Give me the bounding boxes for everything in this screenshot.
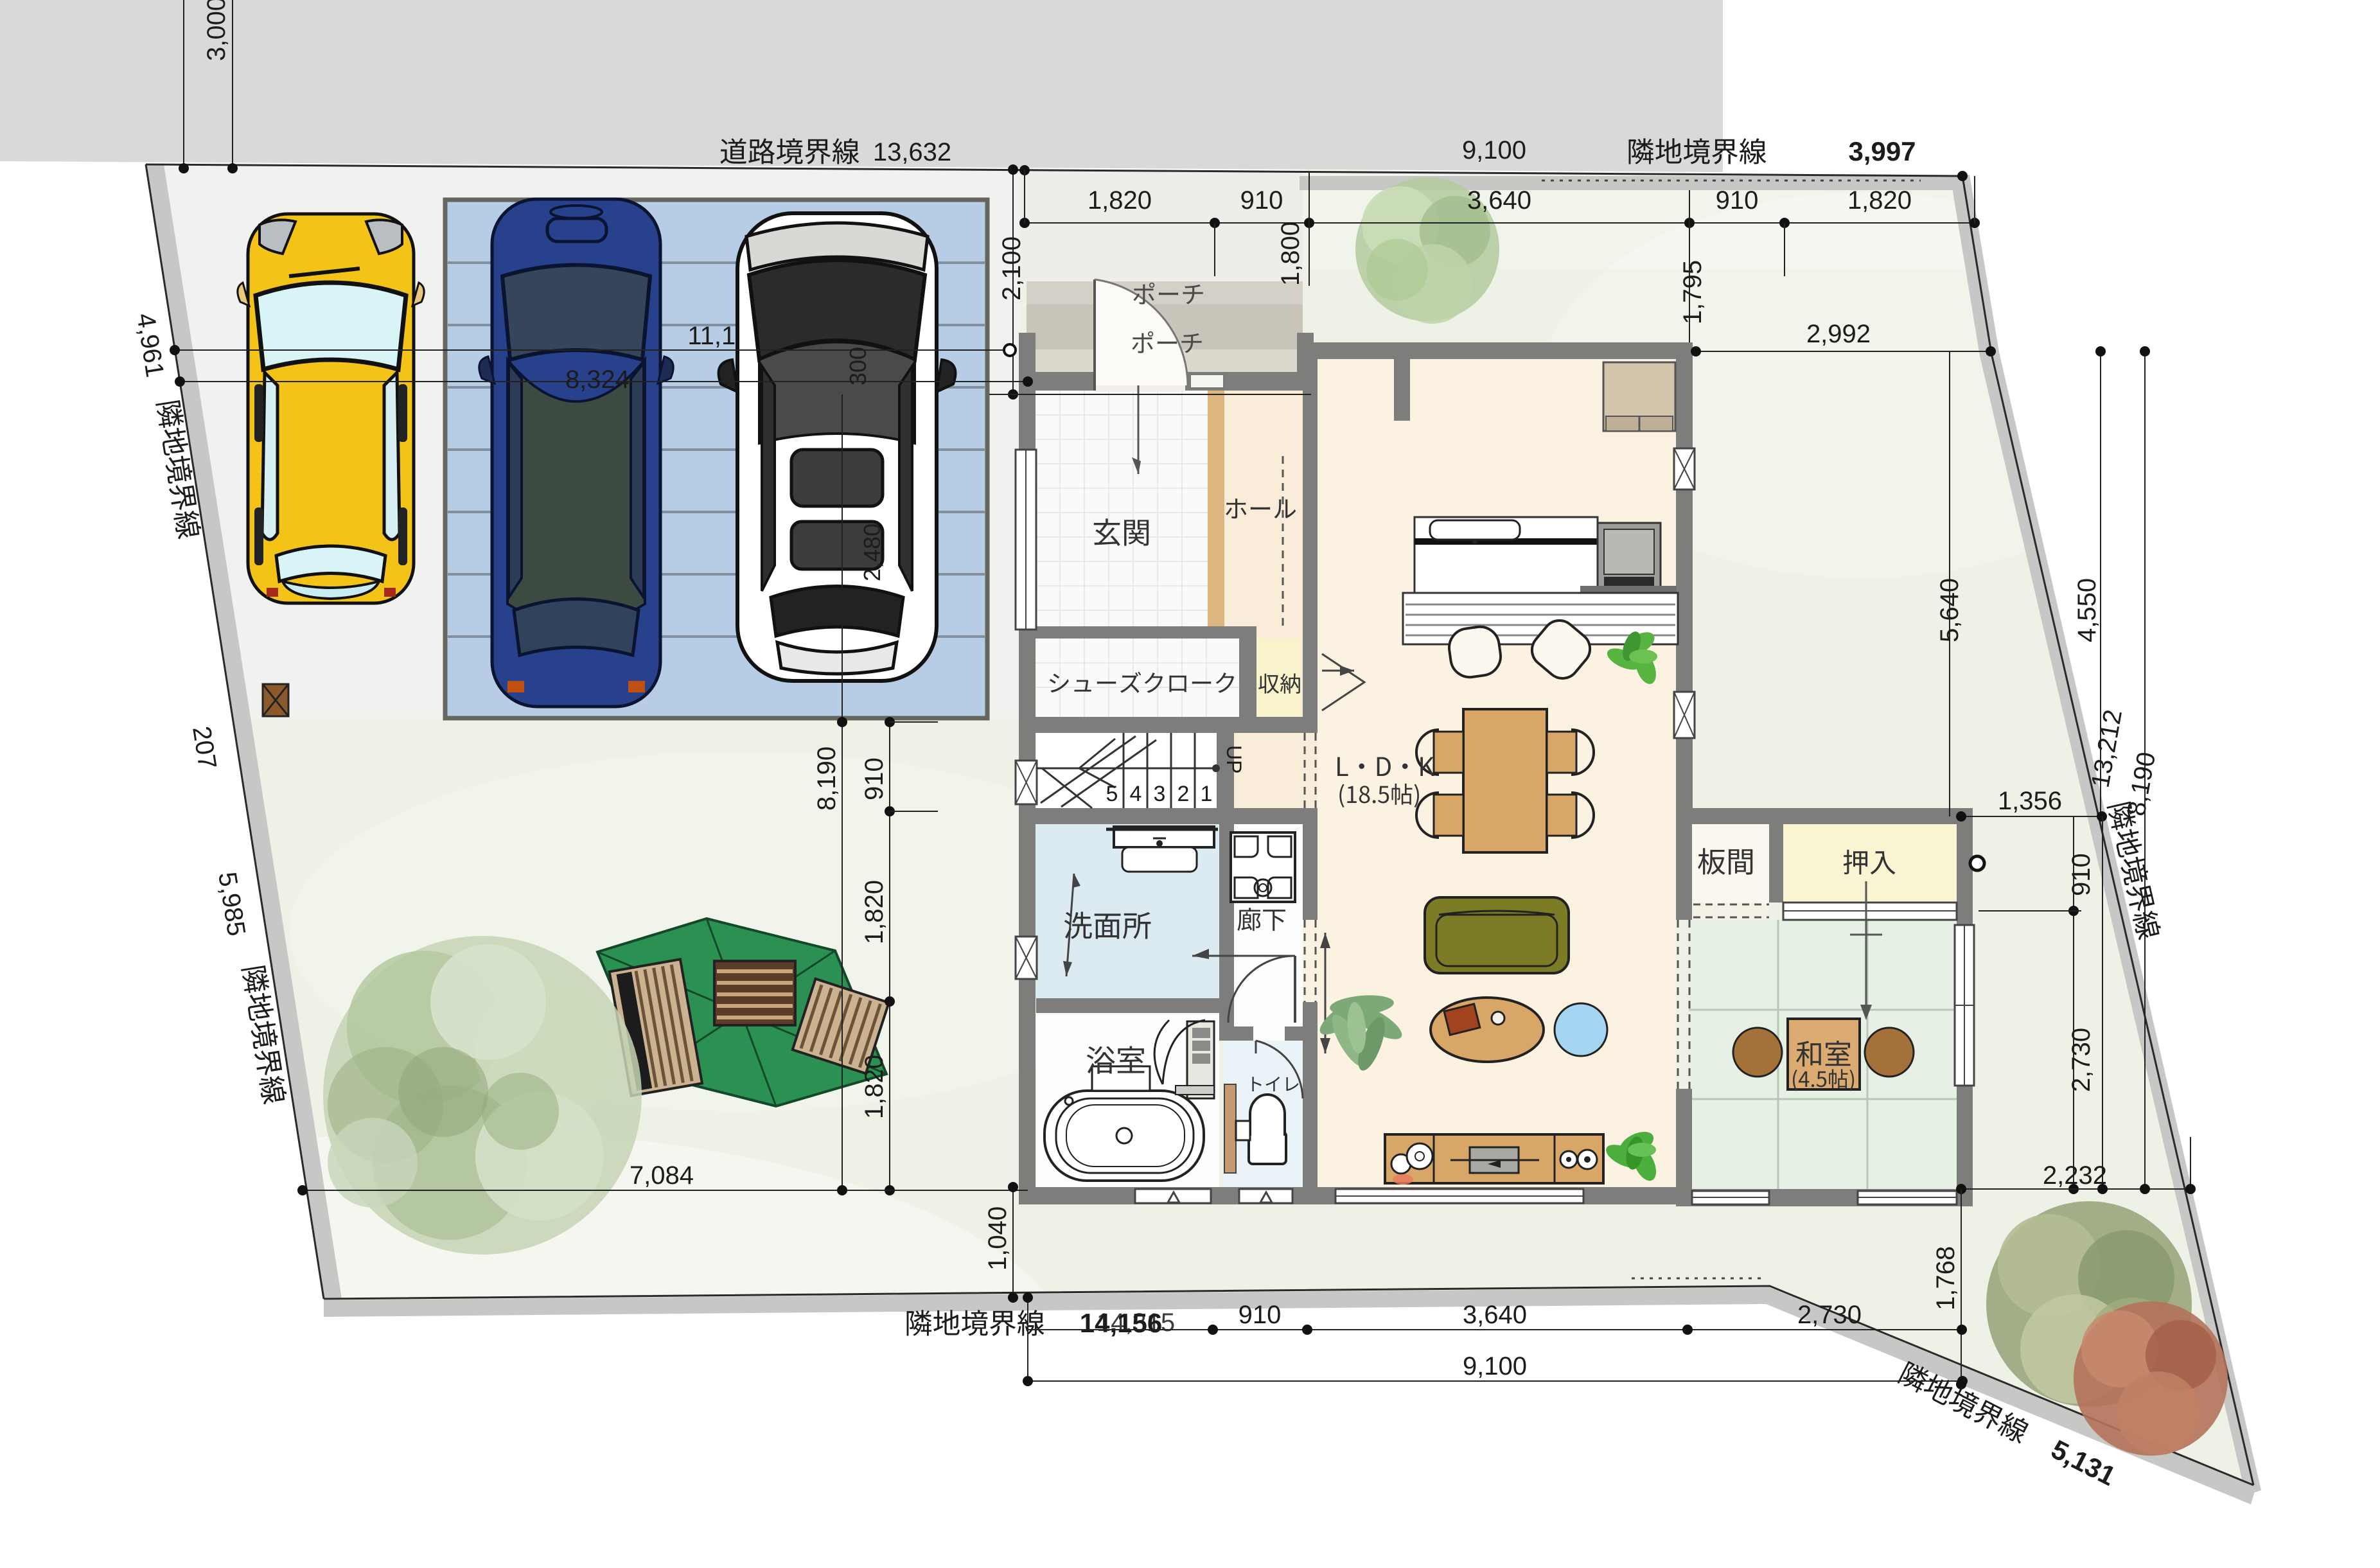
svg-text:1,820: 1,820 — [1088, 186, 1152, 215]
svg-text:2,730: 2,730 — [1797, 1301, 1862, 1329]
svg-text:7,084: 7,084 — [630, 1161, 694, 1190]
svg-text:1,820: 1,820 — [860, 880, 888, 944]
svg-text:2,100: 2,100 — [998, 236, 1026, 301]
svg-text:UP: UP — [1222, 745, 1246, 773]
svg-text:2,480: 2,480 — [859, 524, 885, 581]
svg-text:910: 910 — [1716, 186, 1759, 215]
svg-text:910: 910 — [1240, 186, 1283, 215]
svg-text:4,961: 4,961 — [131, 312, 169, 380]
svg-text:3,000: 3,000 — [202, 0, 231, 61]
svg-text:1,795: 1,795 — [1679, 260, 1707, 324]
svg-text:910: 910 — [1238, 1301, 1282, 1329]
svg-text:2: 2 — [1177, 782, 1190, 806]
svg-text:2,730: 2,730 — [2067, 1028, 2095, 1092]
svg-text:1,820: 1,820 — [1847, 186, 1912, 215]
svg-text:3,997: 3,997 — [1848, 136, 1916, 166]
svg-text:910: 910 — [2067, 853, 2095, 896]
svg-text:3,640: 3,640 — [1467, 186, 1531, 215]
svg-text:5,985: 5,985 — [213, 870, 251, 938]
svg-text:8,324: 8,324 — [565, 366, 630, 394]
svg-text:4,550: 4,550 — [2073, 578, 2101, 642]
svg-text:2,992: 2,992 — [1806, 320, 1871, 348]
svg-text:3: 3 — [1154, 782, 1166, 806]
svg-text:13,632: 13,632 — [873, 138, 951, 166]
svg-text:207: 207 — [187, 725, 222, 771]
svg-text:1,040: 1,040 — [983, 1206, 1012, 1271]
svg-text:2,232: 2,232 — [2043, 1161, 2107, 1190]
svg-text:13,212: 13,212 — [2086, 707, 2128, 789]
svg-text:1,820: 1,820 — [860, 1055, 888, 1119]
svg-text:910: 910 — [860, 757, 888, 800]
svg-text:9,100: 9,100 — [1462, 136, 1526, 164]
svg-text:5,640: 5,640 — [1935, 578, 1964, 642]
svg-text:4: 4 — [1130, 782, 1142, 806]
svg-text:1: 1 — [1201, 782, 1213, 806]
svg-text:3,640: 3,640 — [1463, 1301, 1527, 1329]
svg-text:14,315: 14,315 — [1097, 1308, 1175, 1337]
svg-text:1,800: 1,800 — [1276, 222, 1305, 286]
svg-text:300: 300 — [845, 347, 871, 385]
svg-text:9,100: 9,100 — [1463, 1352, 1527, 1380]
svg-text:1,768: 1,768 — [1932, 1246, 1960, 1310]
svg-text:1,356: 1,356 — [1998, 787, 2062, 815]
svg-text:5: 5 — [1106, 782, 1118, 806]
svg-text:8,190: 8,190 — [813, 746, 841, 811]
